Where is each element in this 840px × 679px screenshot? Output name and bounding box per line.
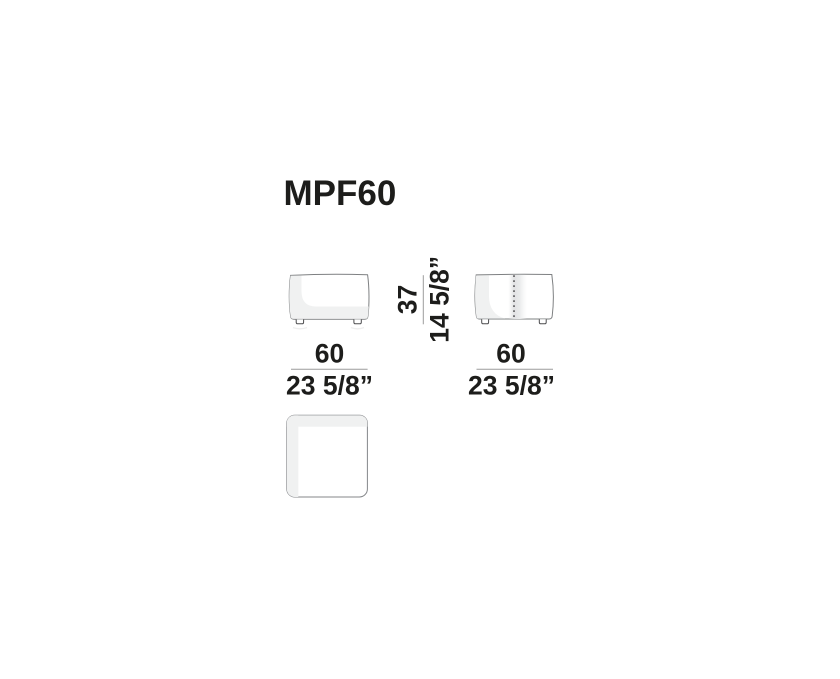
svg-text:60: 60 [496,339,525,369]
svg-text:23 5/8”: 23 5/8” [286,371,373,401]
svg-text:MPF60: MPF60 [284,174,397,213]
svg-text:37: 37 [393,285,423,314]
svg-text:23 5/8”: 23 5/8” [468,371,555,401]
svg-text:14 5/8”: 14 5/8” [424,256,454,343]
svg-text:60: 60 [315,339,344,369]
